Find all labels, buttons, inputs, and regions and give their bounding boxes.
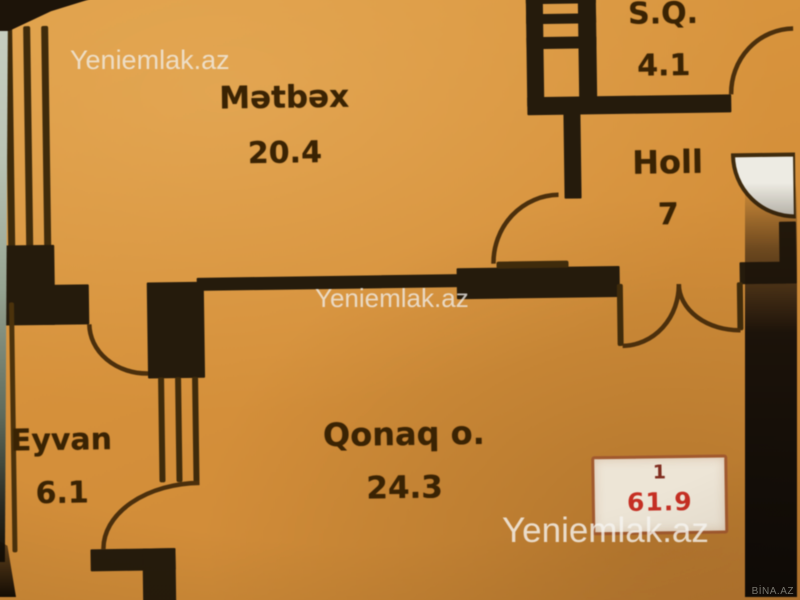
door-arc-kitchen [493, 195, 560, 264]
door-arc-double-left [622, 284, 680, 346]
photo-right-dark-margin [745, 0, 797, 597]
watermark-top-left: Yeniemlak.az [70, 45, 230, 76]
door-arc-eyvan [89, 324, 148, 375]
source-tag: BİNA.AZ [752, 586, 794, 597]
photo-blur-layer: Mətbəx 20.4 S.Q. 4.1 Holl 7 Eyvan 6.1 Qo… [0, 0, 800, 600]
door-arc-double-right [679, 283, 741, 331]
badge-unit: 1 [594, 461, 724, 484]
floor-plan-photo: Mətbəx 20.4 S.Q. 4.1 Holl 7 Eyvan 6.1 Qo… [0, 0, 800, 600]
watermark-center: Yeniemlak.az [315, 283, 469, 314]
watermark-bottom-right: Yeniemlak.az [502, 511, 709, 551]
door-arc-balcony [103, 483, 201, 549]
